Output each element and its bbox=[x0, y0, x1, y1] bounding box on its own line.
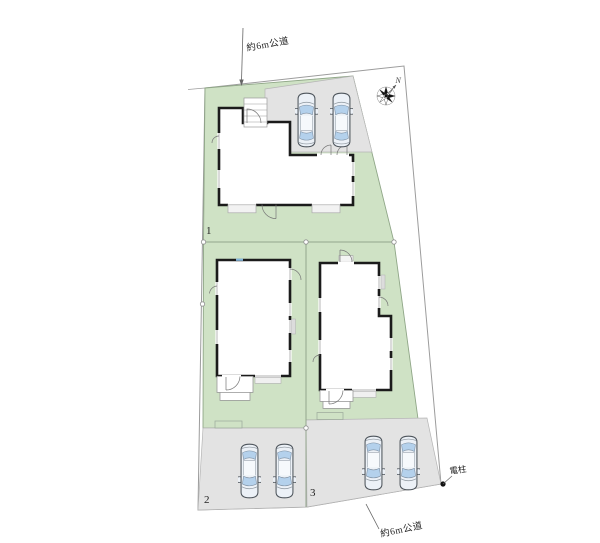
plot-number-3: 3 bbox=[310, 487, 316, 499]
stairs-icon bbox=[244, 98, 267, 127]
window-sill bbox=[352, 391, 376, 397]
road-label-top: 約6m公道 bbox=[245, 35, 290, 54]
site-plan-page: 1 2 3 約6m公道 約6m公道 電柱 N bbox=[0, 0, 600, 543]
road-annotation-top: 約6m公道 bbox=[239, 28, 290, 86]
road-annotation-bottom: 約6m公道 bbox=[366, 504, 424, 540]
utility-pole-label: 電柱 bbox=[449, 464, 468, 476]
porch-step bbox=[220, 392, 250, 400]
plot-number-2: 2 bbox=[204, 494, 210, 506]
car-icon bbox=[330, 93, 354, 147]
car-icon bbox=[295, 93, 319, 147]
plot-3-step bbox=[317, 413, 343, 420]
window-blue-tick bbox=[236, 259, 243, 261]
road-label-bottom: 約6m公道 bbox=[379, 519, 424, 540]
plot-2-step bbox=[215, 421, 242, 428]
site-plan-svg: 1 2 3 約6m公道 約6m公道 電柱 N bbox=[0, 0, 600, 543]
car-icon bbox=[273, 444, 297, 498]
porch-step bbox=[323, 401, 350, 408]
shutter-box bbox=[381, 275, 385, 289]
north-label: N bbox=[395, 76, 402, 85]
porch bbox=[217, 376, 253, 392]
car-icon bbox=[397, 436, 421, 490]
utility-pole-marker: 電柱 bbox=[440, 464, 467, 487]
porch bbox=[320, 390, 353, 401]
plot-number-1: 1 bbox=[206, 225, 212, 237]
porch-step bbox=[228, 205, 256, 213]
boundary-tick bbox=[188, 88, 205, 90]
car-icon bbox=[238, 444, 262, 498]
porch-step bbox=[312, 205, 340, 213]
window-sill bbox=[255, 377, 281, 383]
shutter-box bbox=[292, 319, 296, 334]
car-icon bbox=[362, 436, 386, 490]
